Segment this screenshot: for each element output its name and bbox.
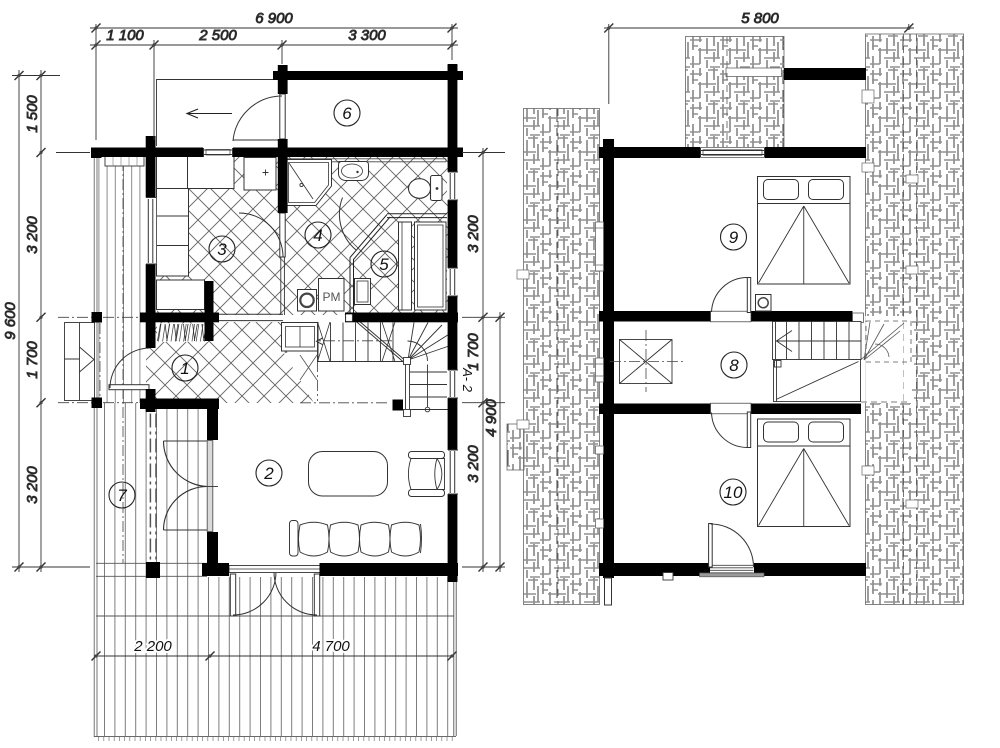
svg-text:9: 9 [729,228,739,247]
svg-text:6 900: 6 900 [255,10,293,27]
svg-text:9 600: 9 600 [2,302,19,340]
svg-text:2: 2 [263,464,274,483]
svg-text:8: 8 [729,356,739,375]
svg-text:1: 1 [180,359,189,378]
svg-text:4 900: 4 900 [483,399,500,437]
svg-text:1 700: 1 700 [24,341,41,379]
svg-text:1 700: 1 700 [465,333,482,371]
svg-text:PM: PM [323,290,341,304]
svg-text:3 200: 3 200 [465,445,482,483]
svg-text:5: 5 [379,255,389,274]
svg-text:4 700: 4 700 [312,638,350,655]
svg-text:2 200: 2 200 [133,638,172,655]
svg-text:1 100: 1 100 [106,27,144,44]
svg-text:1 500: 1 500 [24,95,41,133]
svg-text:3 300: 3 300 [348,27,386,44]
svg-text:3 200: 3 200 [24,466,41,504]
svg-text:4: 4 [313,226,322,245]
svg-text:6: 6 [342,104,352,123]
svg-text:3: 3 [217,240,227,259]
svg-text:10: 10 [724,483,743,502]
svg-text:2 500: 2 500 [198,27,237,44]
svg-text:3 200: 3 200 [465,215,482,253]
svg-text:5 800: 5 800 [741,10,779,27]
svg-text:7: 7 [117,486,127,505]
svg-text:3 200: 3 200 [24,216,41,254]
